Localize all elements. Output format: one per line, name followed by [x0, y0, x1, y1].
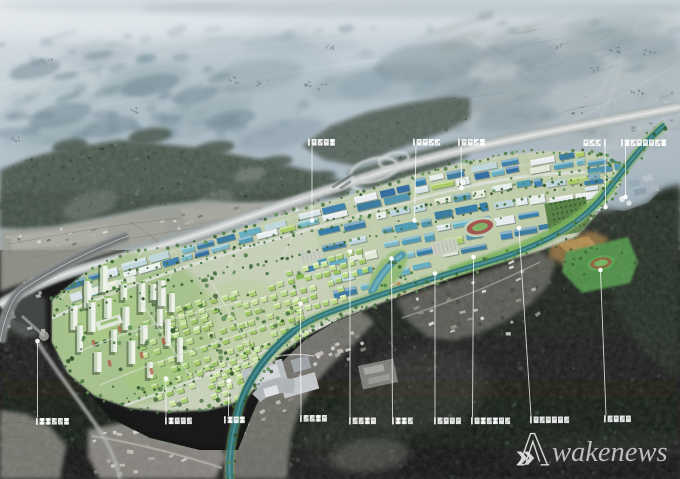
svg-text:wakenews: wakenews [552, 437, 668, 468]
